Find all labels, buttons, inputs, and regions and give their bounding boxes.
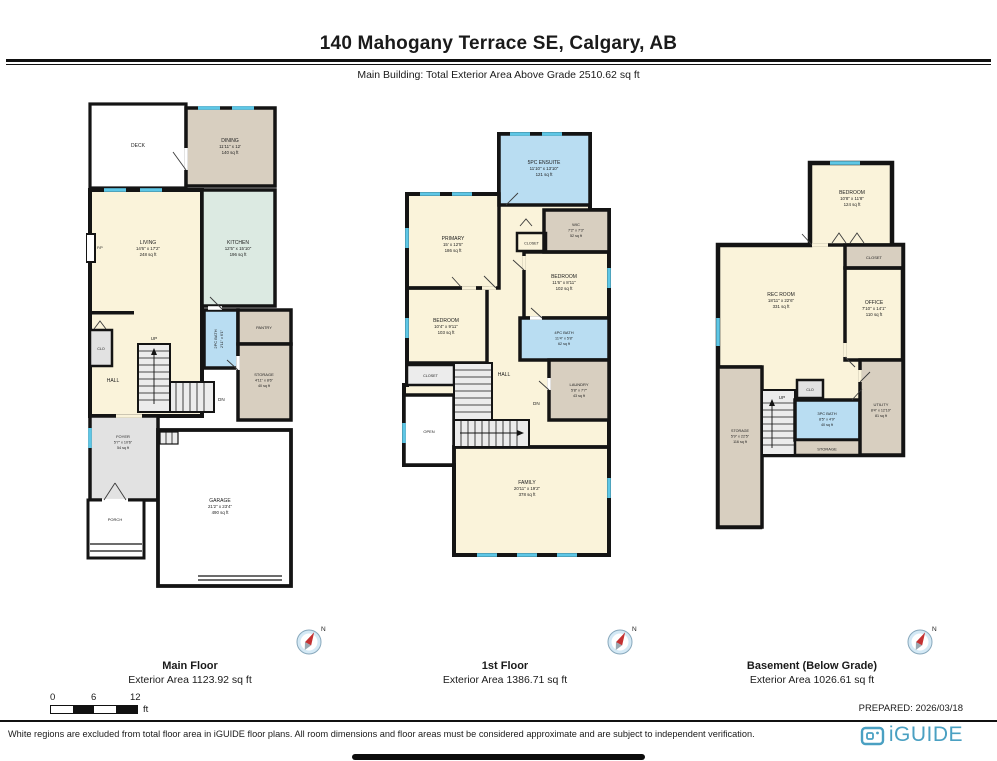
svg-text:LAUNDRY: LAUNDRY: [569, 382, 588, 387]
room-storage-main: STORAGE 4'11" x 8'6" 40 sq ft: [238, 344, 291, 420]
svg-text:CLOSET: CLOSET: [524, 242, 540, 246]
hall-label-1st: HALL: [498, 372, 511, 378]
svg-text:43 sq ft: 43 sq ft: [573, 394, 585, 398]
room-garage: GARAGE 21'2" x 23'4" 490 sq ft: [158, 430, 291, 586]
svg-text:WIC: WIC: [572, 222, 580, 227]
room-dining: DINING 11'11" x 12' 140 sq ft: [186, 108, 275, 186]
svg-text:54 sq ft: 54 sq ft: [117, 446, 129, 450]
svg-text:11'10" x 13'10": 11'10" x 13'10": [530, 166, 559, 171]
svg-text:CLO: CLO: [806, 388, 814, 392]
svg-text:18'11" x 22'6": 18'11" x 22'6": [768, 298, 795, 303]
svg-text:10'8" x 11'8": 10'8" x 11'8": [840, 196, 864, 201]
svg-text:40 sq ft: 40 sq ft: [258, 384, 270, 388]
svg-text:102 sq ft: 102 sq ft: [556, 286, 574, 291]
svg-text:110 sq ft: 110 sq ft: [866, 312, 883, 317]
room-pantry: PANTRY: [238, 310, 291, 344]
svg-text:124 sq ft: 124 sq ft: [844, 202, 862, 207]
svg-text:5'9" x 22'5": 5'9" x 22'5": [731, 435, 750, 439]
svg-text:103 sq ft: 103 sq ft: [438, 330, 456, 335]
svg-text:5'8" x 7'7": 5'8" x 7'7": [571, 389, 588, 393]
compass-basement: N: [903, 620, 939, 658]
svg-text:OPEN: OPEN: [423, 429, 434, 434]
svg-text:CLO: CLO: [97, 347, 105, 351]
up-label-main: UP: [151, 336, 157, 341]
svg-text:10'4" x 9'11": 10'4" x 9'11": [434, 324, 458, 329]
room-kitchen: KITCHEN 12'5" x 15'10" 196 sq ft: [202, 190, 275, 306]
floorplan-page: 140 Mahogany Terrace SE, Calgary, AB Mai…: [0, 0, 997, 761]
svg-text:11'6" x 8'11": 11'6" x 8'11": [552, 280, 576, 285]
svg-text:196 sq ft: 196 sq ft: [230, 252, 248, 257]
svg-text:121 sq ft: 121 sq ft: [536, 172, 554, 177]
svg-text:FOYER: FOYER: [116, 434, 130, 439]
svg-text:2PC BATH: 2PC BATH: [213, 329, 218, 348]
header-rule-thin: [6, 64, 991, 65]
svg-text:UTILITY: UTILITY: [874, 402, 889, 407]
room-storage-left: STORAGE 5'9" x 22'5" 116 sq ft: [718, 367, 762, 527]
hall-label: HALL: [107, 378, 120, 384]
svg-text:7'2" x 7'3": 7'2" x 7'3": [568, 229, 585, 233]
svg-text:116 sq ft: 116 sq ft: [733, 440, 747, 444]
room-closet-bsmt: CLOSET: [845, 245, 903, 268]
bottom-bar: [352, 754, 645, 760]
svg-text:N: N: [632, 626, 637, 633]
svg-text:STORAGE: STORAGE: [254, 372, 274, 377]
svg-text:CLOSET: CLOSET: [423, 374, 439, 378]
room-utility: UTILITY 8'4" x 12'10" 81 sq ft: [860, 360, 903, 455]
svg-text:21'2" x 23'4": 21'2" x 23'4": [208, 504, 233, 509]
room-foyer: FOYER 5'7" x 10'6" 54 sq ft: [90, 416, 158, 500]
iguide-logo: iGUIDE: [860, 723, 963, 747]
svg-text:62 sq ft: 62 sq ft: [558, 342, 570, 346]
header-rule-thick: [6, 59, 991, 62]
compass-first: N: [603, 620, 639, 658]
svg-text:331 sq ft: 331 sq ft: [773, 304, 791, 309]
iguide-camera-icon: [860, 725, 885, 746]
room-wic: WIC 7'2" x 7'3" 52 sq ft: [544, 210, 609, 252]
scale-bar-segments: [50, 705, 138, 714]
scale-bar: 0 6 12 ft: [50, 692, 210, 715]
main-floor-label: Main Floor Exterior Area 1123.92 sq ft: [80, 660, 300, 686]
dn-label-main: DN: [218, 397, 225, 402]
svg-text:STORAGE: STORAGE: [731, 429, 750, 433]
room-clo-main: CLO: [90, 330, 112, 366]
dn-label-first: DN: [533, 401, 540, 406]
svg-text:490 sq ft: 490 sq ft: [212, 510, 230, 515]
room-3pc-bath: 3PC BATH 8'5" x 4'9" 40 sq ft: [795, 400, 860, 440]
svg-text:PANTRY: PANTRY: [256, 325, 272, 330]
svg-text:N: N: [321, 626, 326, 633]
first-floor-label: 1st Floor Exterior Area 1386.71 sq ft: [395, 660, 615, 686]
room-2pc-bath: 2PC BATH 2'11" x 6'1": [204, 310, 238, 368]
room-clo-bsmt: CLO: [797, 380, 823, 398]
svg-text:F/P: F/P: [97, 246, 103, 250]
svg-text:11'11" x 12': 11'11" x 12': [219, 144, 241, 149]
basement-plan: BEDROOM 10'8" x 11'8" 124 sq ft CLOSET O…: [712, 158, 912, 533]
page-title: 140 Mahogany Terrace SE, Calgary, AB: [0, 33, 997, 55]
main-floor-plan: DECK DINING 11'11" x 12' 140 sq ft KITCH…: [86, 98, 296, 590]
svg-text:81 sq ft: 81 sq ft: [875, 414, 887, 418]
svg-text:11'4" x 5'8": 11'4" x 5'8": [555, 337, 574, 341]
svg-text:40 sq ft: 40 sq ft: [821, 423, 833, 427]
svg-text:8'5" x 4'9": 8'5" x 4'9": [819, 418, 836, 422]
room-closet-left: CLOSET: [407, 365, 454, 385]
svg-text:378 sq ft: 378 sq ft: [519, 492, 537, 497]
svg-text:2'11" x 6'1": 2'11" x 6'1": [220, 329, 224, 348]
room-4pc-bath: 4PC BATH 11'4" x 5'8" 62 sq ft: [520, 318, 609, 360]
svg-text:7'10" x 14'1": 7'10" x 14'1": [862, 306, 887, 311]
svg-text:12'5" x 15'10": 12'5" x 15'10": [225, 246, 252, 251]
svg-text:STORAGE: STORAGE: [817, 447, 837, 452]
footer-disclaimer: White regions are excluded from total fl…: [8, 729, 755, 739]
svg-text:248 sq ft: 248 sq ft: [140, 252, 158, 257]
svg-text:5'7" x 10'6": 5'7" x 10'6": [114, 441, 133, 445]
svg-text:CLOSET: CLOSET: [866, 255, 883, 260]
room-ensuite: 5PC ENSUITE 11'10" x 13'10" 121 sq ft: [499, 134, 590, 205]
svg-text:4'11" x 8'6": 4'11" x 8'6": [255, 379, 274, 383]
svg-text:N: N: [932, 626, 937, 633]
footer-rule: [0, 720, 997, 722]
svg-text:20'11" x 19'2": 20'11" x 19'2": [514, 486, 541, 491]
room-porch: PORCH: [88, 500, 144, 558]
room-open: OPEN: [404, 395, 454, 465]
svg-text:8'4" x 12'10": 8'4" x 12'10": [871, 409, 892, 413]
prepared-date: PREPARED: 2026/03/18: [859, 703, 963, 714]
svg-text:3PC BATH: 3PC BATH: [817, 411, 836, 416]
svg-text:186 sq ft: 186 sq ft: [445, 248, 463, 253]
svg-text:140 sq ft: 140 sq ft: [222, 150, 240, 155]
compass-main: N: [292, 620, 328, 658]
room-deck: DECK: [90, 104, 186, 188]
svg-text:4PC BATH: 4PC BATH: [554, 330, 573, 335]
page-subtitle: Main Building: Total Exterior Area Above…: [0, 69, 997, 81]
room-laundry: LAUNDRY 5'8" x 7'7" 43 sq ft: [549, 360, 609, 420]
svg-text:14'6" x 17'2": 14'6" x 17'2": [136, 246, 161, 251]
up-label-bsmt: UP: [779, 395, 785, 400]
svg-text:PORCH: PORCH: [108, 517, 123, 522]
svg-text:52 sq ft: 52 sq ft: [570, 234, 582, 238]
room-storage-center: STORAGE: [795, 440, 860, 455]
svg-text:15' x 12'5": 15' x 12'5": [443, 242, 464, 247]
basement-label: Basement (Below Grade) Exterior Area 102…: [702, 660, 922, 686]
svg-text:DECK: DECK: [131, 143, 146, 149]
first-floor-plan: 5PC ENSUITE 11'10" x 13'10" 121 sq ft WI…: [402, 128, 614, 560]
